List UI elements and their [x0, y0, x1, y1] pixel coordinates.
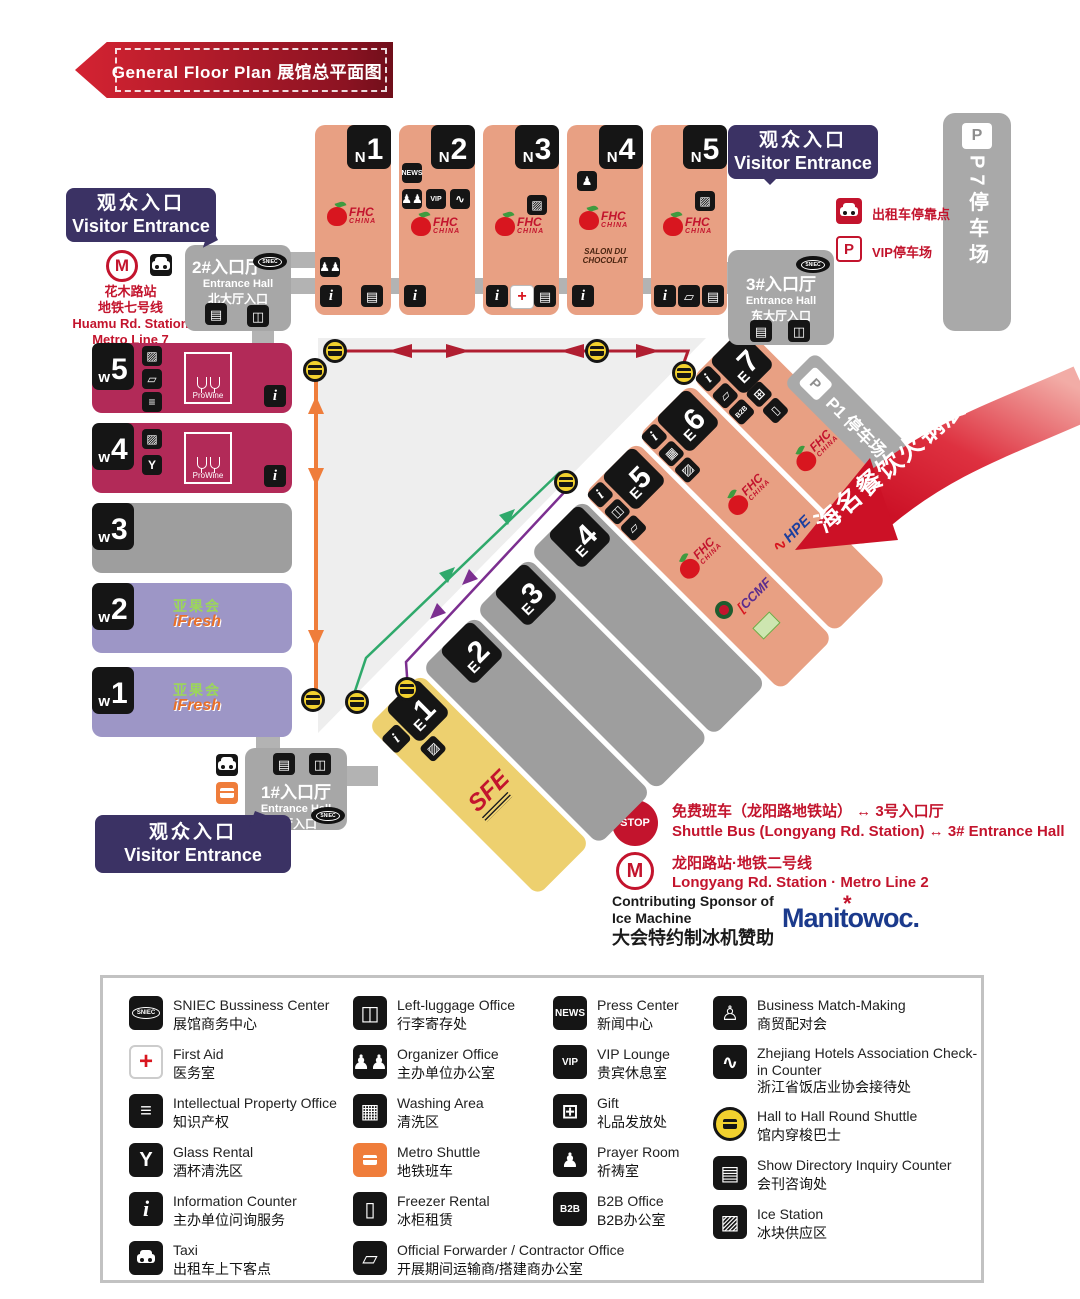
expo-badge-icon: [711, 597, 736, 622]
glass-rental-icon: Y: [129, 1143, 163, 1177]
legend-item: ▤ Show Directory Inquiry Counter会刊咨询处: [713, 1156, 982, 1194]
vip-lounge-icon: VIP: [553, 1045, 587, 1079]
bus-stop-icon: [301, 688, 325, 712]
press-center-icon: NEWS: [402, 163, 422, 183]
hall-w3-label: w3: [92, 503, 134, 550]
nf-badge-icon: [752, 611, 780, 639]
left-luggage-icon: ◫: [309, 753, 331, 775]
legend-item: ⊞ Gift礼品发放处: [553, 1094, 679, 1132]
sniec-badge-icon: SNIEC: [253, 253, 287, 270]
info-icon: i: [264, 385, 286, 407]
business-match-making-icon: ♙: [713, 996, 747, 1030]
press-center-icon: NEWS: [553, 996, 587, 1030]
hall-w3: w3: [92, 503, 292, 573]
huamu-station-info: 花木路站地铁七号线 Huamu Rd. StationMetro Line 7: [58, 284, 203, 348]
hall-w5: w5 ▨ ▱ ≡ ProWine i: [92, 343, 292, 413]
longyang-station-info: 龙阳路站·地铁二号线 Longyang Rd. Station · Metro …: [672, 854, 929, 892]
fhc-china-logo: FHCCHINA: [676, 534, 724, 582]
show-directory-icon: ▤: [713, 1156, 747, 1190]
hall-n4: N4 ♟ FHCCHINA SALON DUCHOCOLAT i: [567, 125, 643, 315]
hall-w5-label: w5: [92, 343, 134, 390]
sniec-business-center-icon: SNIEC: [129, 996, 163, 1030]
first-aid-icon: +: [129, 1045, 163, 1079]
ice-station-icon: ▨: [695, 191, 715, 211]
floor-plan-canvas: General Floor Plan 展馆总平面图 N1 FHCCHINA ♟♟…: [0, 0, 1080, 1299]
fhc-china-logo: FHCCHINA: [495, 217, 544, 236]
visitor-entrance-south: 观众入口Visitor Entrance: [95, 815, 291, 873]
show-directory-icon: ▤: [702, 285, 724, 307]
apple-icon: [579, 211, 599, 230]
bus-stop-icon: [554, 470, 578, 494]
legend-item: + First Aid医务室: [129, 1045, 337, 1083]
hall-n4-label: N4: [599, 125, 643, 169]
snowflake-icon: *: [843, 891, 851, 917]
info-icon: i: [654, 285, 676, 307]
show-directory-icon: ▤: [205, 303, 227, 325]
fhc-china-logo: FHCCHINA: [327, 207, 376, 226]
forwarder-icon: ▱: [678, 285, 700, 307]
forwarder-icon: ▱: [142, 369, 162, 389]
legend-item: ♟ Prayer Room祈祷室: [553, 1143, 679, 1181]
first-aid-icon: +: [510, 285, 534, 309]
bus-stop-icon: [585, 339, 609, 363]
parking-icon: P: [962, 123, 992, 149]
fhc-china-logo: FHCCHINA: [663, 217, 712, 236]
metro-logo-icon: M: [616, 852, 654, 890]
legend-item: ▨ Ice Station冰块供应区: [713, 1205, 982, 1243]
ice-station-icon: ▨: [527, 195, 547, 215]
bus-stop-icon: [323, 339, 347, 363]
information-counter-icon: i: [129, 1192, 163, 1226]
ice-station-icon: ▨: [142, 346, 162, 366]
entrance-hall-3-desc: 东大厅入口: [728, 307, 834, 324]
prowine-logo: ProWine: [184, 432, 232, 484]
info-icon: i: [264, 465, 286, 487]
fhc-china-logo: FHCCHINA: [792, 427, 840, 475]
hall-w1: w1 亚果会iFresh: [92, 667, 292, 737]
hall-w2-label: w2: [92, 583, 134, 630]
apple-icon: [327, 207, 347, 226]
bus-stop-icon: [345, 690, 369, 714]
show-directory-icon: ▤: [361, 285, 383, 307]
legend-item: ≡ Intellectual Property Office知识产权: [129, 1094, 337, 1132]
zhejiang-hotels-icon: ∿: [450, 189, 470, 209]
legend-item: ▱ Official Forwarder / Contractor Office…: [353, 1241, 624, 1279]
legend-item: SNIEC SNIEC Bussiness Center展馆商务中心: [129, 996, 337, 1034]
parking-icon: P: [798, 366, 833, 401]
prayer-room-icon: ♟: [577, 171, 597, 191]
info-icon: i: [572, 285, 594, 307]
entrance-hall-2-en: Entrance Hall: [185, 278, 291, 290]
salon-du-chocolat-logo: SALON DUCHOCOLAT: [577, 247, 633, 265]
gift-icon: ⊞: [553, 1094, 587, 1128]
hall-w2: w2 亚果会iFresh: [92, 583, 292, 653]
hall-n2-label: N2: [431, 125, 475, 169]
organizer-office-icon: ♟♟: [402, 189, 422, 209]
ice-station-icon: ▨: [713, 1205, 747, 1239]
shuttle-bus-info: 免费班车（龙阳路地铁站） ↔ 3号入口厅 Shuttle Bus (Longya…: [672, 802, 1065, 842]
hall-w1-label: w1: [92, 667, 134, 714]
bubble-tail: [758, 173, 782, 197]
legend-box: SNIEC SNIEC Bussiness Center展馆商务中心 + Fir…: [100, 975, 984, 1283]
legend-col1: SNIEC SNIEC Bussiness Center展馆商务中心 + Fir…: [129, 996, 337, 1279]
legend-item: ∿ Zhejiang Hotels Association Check-in C…: [713, 1045, 982, 1096]
show-directory-icon: ▤: [534, 285, 556, 307]
legend-item: Hall to Hall Round Shuttle馆内穿梭巴士: [713, 1107, 982, 1145]
info-icon: i: [320, 285, 342, 307]
page-title-zh: 展馆总平面图: [277, 63, 382, 82]
hpe-logo: ∿HPE: [768, 511, 815, 558]
b2b-office-icon: B2B: [553, 1192, 587, 1226]
sniec-badge-icon: SNIEC: [311, 807, 345, 824]
taxi-stop-icon: [836, 198, 862, 224]
show-directory-icon: ▤: [750, 320, 772, 342]
prayer-room-icon: ♟: [553, 1143, 587, 1177]
hall-shuttle-icon: [713, 1107, 747, 1141]
hall-n2: N2 NEWS ♟♟ VIP ∿ FHCCHINA i: [399, 125, 475, 315]
hall-n1: N1 FHCCHINA ♟♟ i ▤: [315, 125, 391, 315]
ifresh-logo: 亚果会iFresh: [162, 599, 232, 629]
hall1-e1-connector: [344, 766, 378, 786]
vip-parking-icon: P: [836, 236, 862, 262]
forwarder-icon: ▱: [353, 1241, 387, 1275]
freezer-rental-icon: ▯: [353, 1192, 387, 1226]
apple-icon: [411, 217, 431, 236]
page-title-en: General Floor Plan: [112, 63, 272, 82]
entrance-hall-2: SNIEC 2#入口厅 Entrance Hall 北大厅入口 ▤ ◫: [185, 245, 291, 331]
visitor-entrance-west: 观众入口Visitor Entrance: [66, 188, 216, 242]
entrance-hall-3: SNIEC 3#入口厅 Entrance Hall 东大厅入口 ▤ ◫: [728, 250, 834, 345]
washing-area-icon: ▦: [353, 1094, 387, 1128]
hall-n1-label: N1: [347, 125, 391, 169]
hall-n5-label: N5: [683, 125, 727, 169]
sponsor-text: Contributing Sponsor of Ice Machine 大会特约…: [612, 893, 774, 947]
bus-stop-icon: [395, 677, 419, 701]
legend-item: NEWS Press Center新闻中心: [553, 996, 679, 1034]
intellectual-property-icon: ≡: [142, 392, 162, 412]
left-luggage-icon: ◫: [788, 320, 810, 342]
vip-parking-label: VIP停车场: [872, 242, 932, 261]
metro-logo-icon: M: [106, 250, 138, 282]
organizer-office-icon: ♟♟: [353, 1045, 387, 1079]
entrance-hall-2-desc: 北大厅入口: [185, 290, 291, 307]
metro-shuttle-icon: [353, 1143, 387, 1177]
legend-col3: NEWS Press Center新闻中心 VIP VIP Lounge贵宾休息…: [553, 996, 679, 1230]
show-directory-icon: ▤: [273, 753, 295, 775]
glass-rental-icon: Y: [142, 455, 162, 475]
info-icon: i: [486, 285, 508, 307]
left-luggage-icon: ◫: [353, 996, 387, 1030]
legend-item: ♙ Business Match-Making商贸配对会: [713, 996, 982, 1034]
prowine-logo: ProWine: [184, 352, 232, 404]
entrance-hall-3-title: 3#入口厅: [728, 270, 834, 295]
organizer-office-icon: ♟♟: [320, 257, 340, 277]
intellectual-property-icon: ≡: [129, 1094, 163, 1128]
metro-shuttle-icon: [216, 782, 238, 804]
apple-icon: [663, 217, 683, 236]
visitor-entrance-east: 观众入口Visitor Entrance: [728, 125, 878, 179]
fhc-china-logo: FHCCHINA: [724, 471, 772, 519]
sfe-logo: SFE: [464, 767, 520, 823]
entrance-hall-3-en: Entrance Hall: [728, 295, 834, 307]
apple-icon: [495, 217, 515, 236]
ccmf-logo: [CCMF: [734, 575, 774, 615]
hall-w4: w4 ▨ Y ProWine i: [92, 423, 292, 493]
legend-col4: ♙ Business Match-Making商贸配对会 ∿ Zhejiang …: [713, 996, 982, 1243]
manitowoc-logo: Manitowoc.*: [782, 903, 919, 934]
hall-w4-label: w4: [92, 423, 134, 470]
legend-item: Y Glass Rental酒杯清洗区: [129, 1143, 337, 1181]
bus-stop-icon: [672, 361, 696, 385]
page-title-banner: General Floor Plan 展馆总平面图: [75, 42, 393, 98]
hall-n3: N3 ▨ FHCCHINA i + ▤: [483, 125, 559, 315]
fhc-china-logo: FHCCHINA: [579, 211, 628, 230]
bus-stop-icon: [303, 358, 327, 382]
ifresh-logo: 亚果会iFresh: [162, 683, 232, 713]
hall-n3-label: N3: [515, 125, 559, 169]
hall-n5: N5 ▨ FHCCHINA i ▱ ▤: [651, 125, 727, 315]
legend-item: B2B B2B OfficeB2B办公室: [553, 1192, 679, 1230]
parking-p7: P P7停车场: [943, 113, 1011, 331]
info-icon: i: [404, 285, 426, 307]
taxi-icon: [129, 1241, 163, 1275]
zhejiang-hotels-icon: ∿: [713, 1045, 747, 1079]
legend-item: i Information Counter主办单位问询服务: [129, 1192, 337, 1230]
left-luggage-icon: ◫: [247, 305, 269, 327]
taxi-icon: [216, 754, 238, 776]
taxi-stop-label: 出租车停靠点: [872, 204, 950, 223]
fhc-china-logo: FHCCHINA: [411, 217, 460, 236]
vip-lounge-icon: VIP: [426, 189, 446, 209]
ice-station-icon: ▨: [142, 429, 162, 449]
taxi-icon: [150, 254, 172, 276]
legend-item: VIP VIP Lounge贵宾休息室: [553, 1045, 679, 1083]
sniec-badge-icon: SNIEC: [796, 256, 830, 273]
legend-item: Taxi出租车上下客点: [129, 1241, 337, 1279]
